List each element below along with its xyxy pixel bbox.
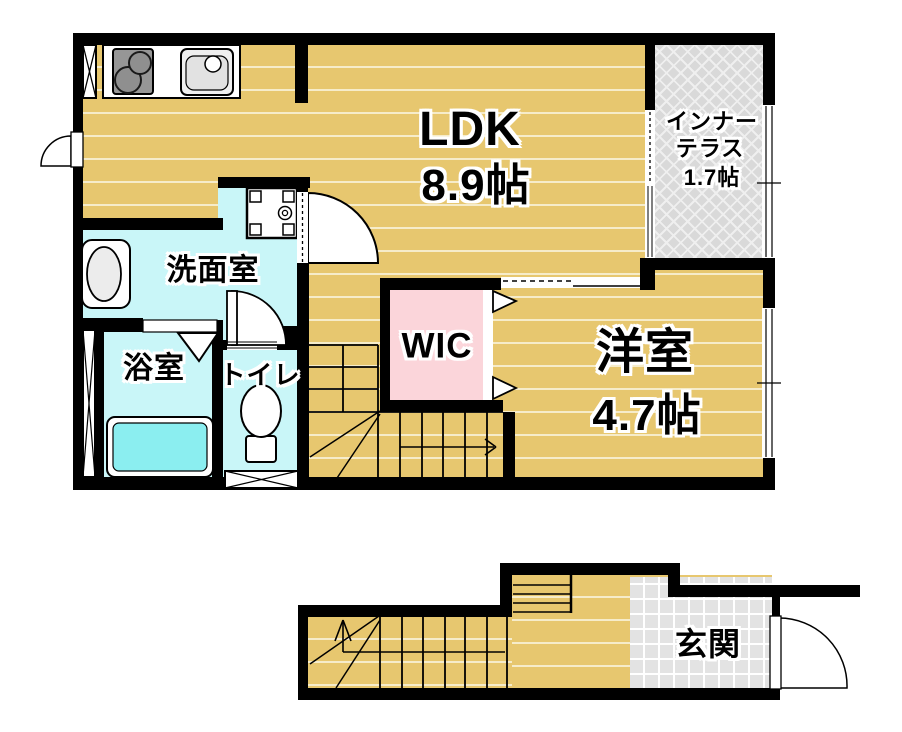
ldk-area-label: 8.9帖	[421, 164, 530, 208]
vent-box-icon	[225, 471, 298, 488]
balcony-door-arc	[41, 132, 83, 167]
ldk-label: LDK	[419, 106, 521, 154]
western-room-area-label: 4.7帖	[592, 394, 701, 438]
washbasin-icon	[82, 240, 130, 308]
washroom-label: 洗面室	[167, 256, 260, 286]
western-room-window-icon	[757, 308, 781, 458]
toilet-icon	[241, 385, 281, 462]
pipe-shaft-icon	[83, 45, 96, 98]
wic-label: WIC	[401, 329, 472, 364]
inner-terrace-area-label: 1.7帖	[684, 167, 741, 189]
western-room-label: 洋室	[596, 329, 694, 377]
entrance-label: 玄関	[675, 628, 741, 660]
terrace-accordion-screen-icon	[645, 110, 655, 258]
wic-bifold-door-icon	[493, 291, 516, 399]
terrace-window-icon	[757, 105, 781, 258]
bathroom-label: 浴室	[123, 354, 185, 384]
toilet-door-arc	[227, 291, 286, 350]
inner-terrace-label-1: インナー	[666, 111, 758, 133]
stairs-2f	[308, 345, 503, 484]
stairs-down-arrow-icon	[400, 439, 496, 455]
stove-burner-icon	[129, 52, 151, 74]
sliding-door-icon	[501, 277, 640, 288]
toilet-label: トイレ	[219, 362, 300, 388]
kitchen-counter-icon	[103, 45, 240, 98]
washing-machine-pan-icon	[247, 188, 297, 238]
bathtub-icon	[107, 417, 213, 477]
stairs-1f	[310, 575, 572, 688]
washroom-door-arc	[297, 192, 378, 263]
inner-terrace-label-2: テラス	[676, 138, 745, 160]
pipe-shaft-icon	[83, 330, 95, 477]
floor-plan: LDK 8.9帖 インナー テラス 1.7帖 洗面室 浴室 トイレ WIC 洋室…	[0, 0, 902, 732]
entrance-door-arc	[770, 616, 847, 689]
stairs-up-arrow-icon	[335, 620, 505, 652]
